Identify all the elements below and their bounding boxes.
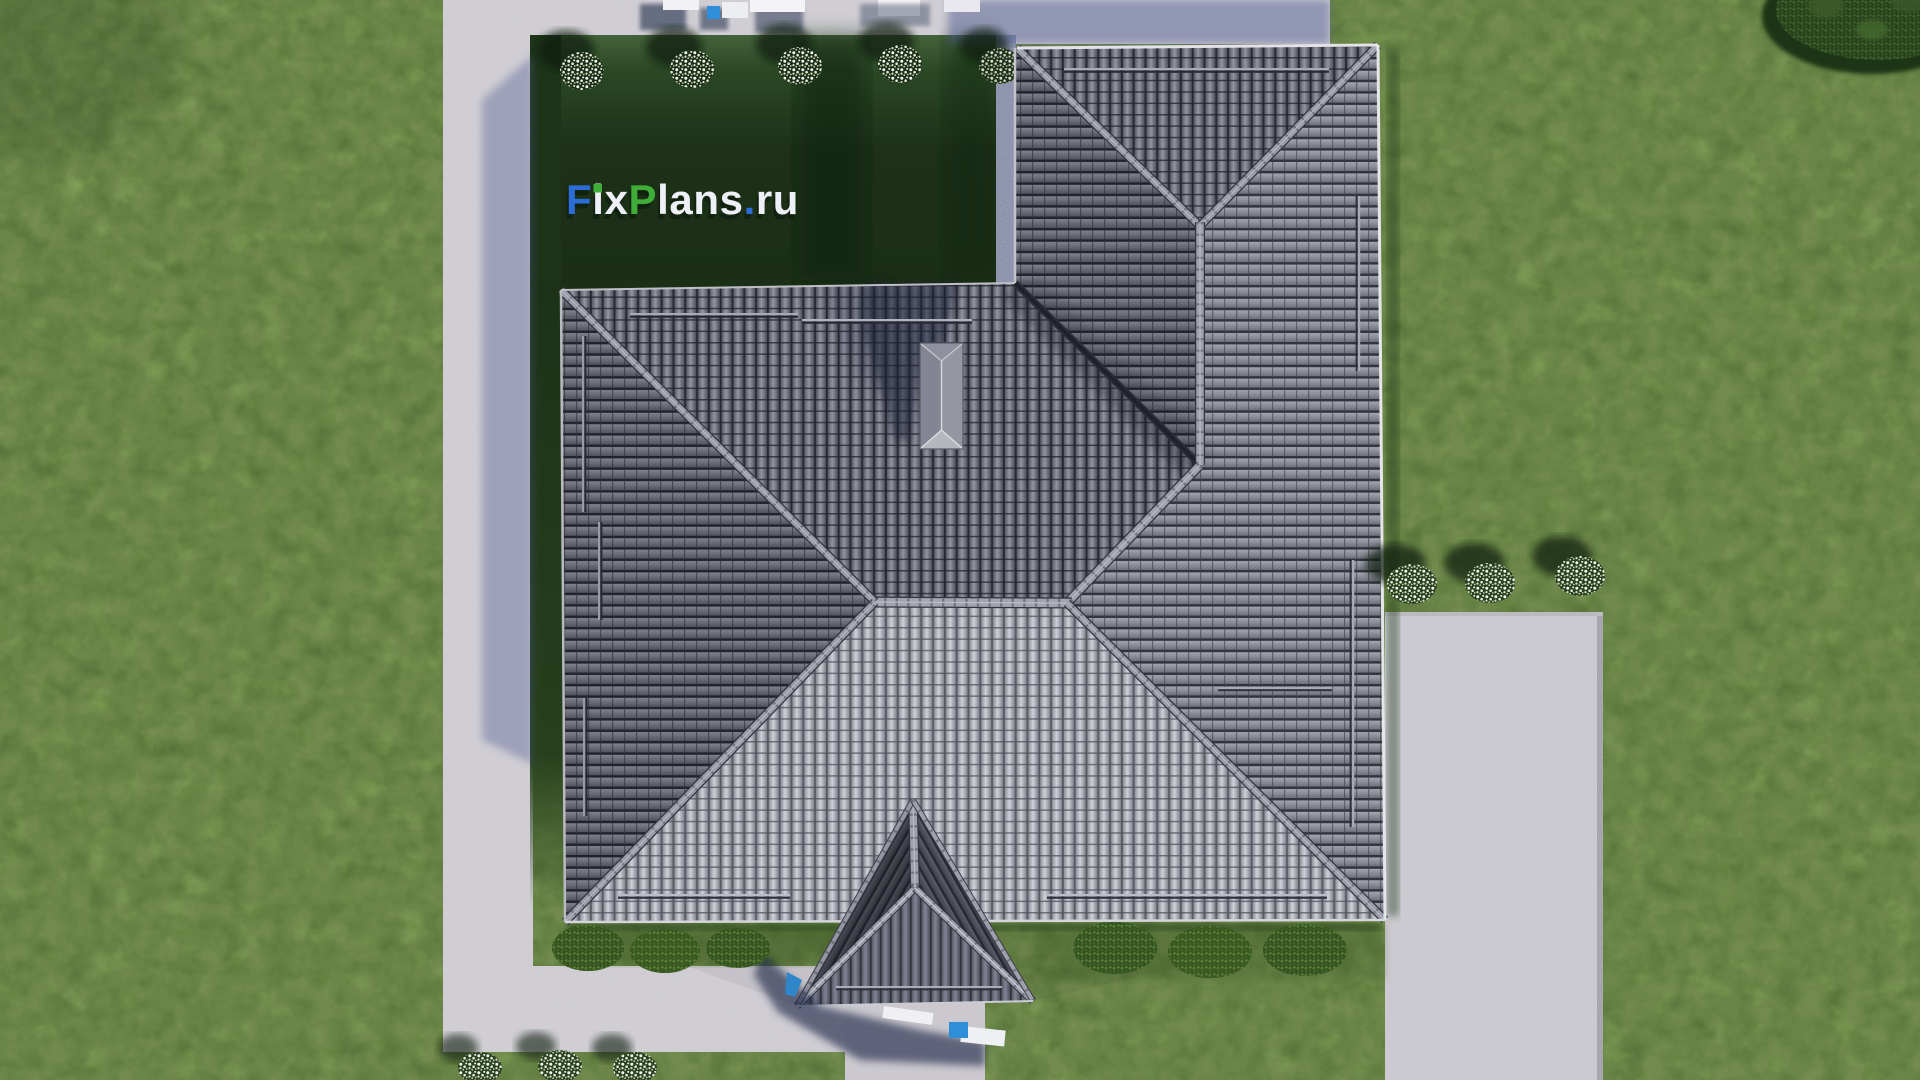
svg-text:FixPlans.ru: FixPlans.ru (566, 176, 799, 223)
